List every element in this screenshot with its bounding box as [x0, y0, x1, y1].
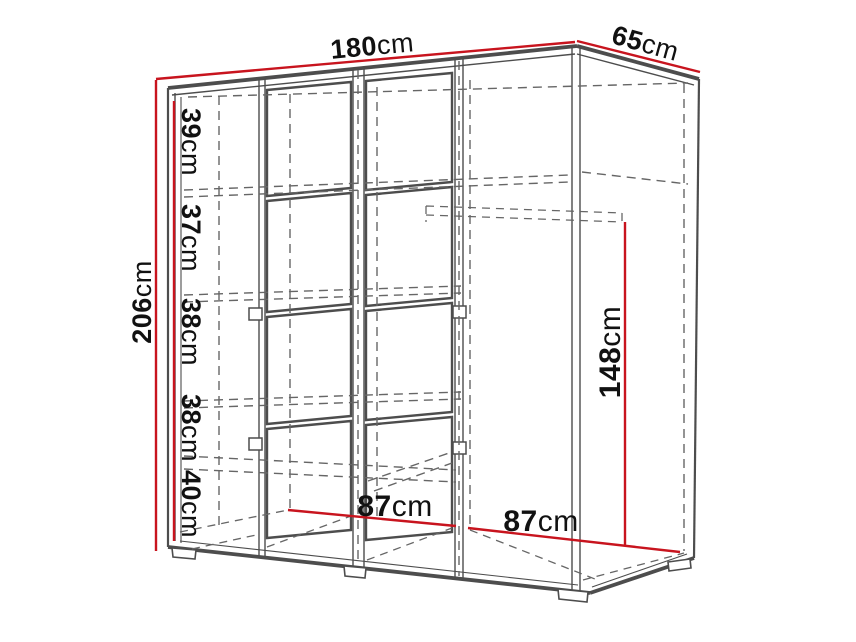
dim-compartment-4-value: 38 — [176, 394, 206, 425]
dim-height-value: 206 — [127, 297, 157, 344]
foot-right-front — [558, 589, 588, 602]
dim-compartment-2-unit: cm — [176, 235, 206, 272]
dim-compartment-2-label: 37cm — [176, 204, 206, 272]
dim-width-label: 180cm — [329, 27, 415, 65]
shelf-box-a1 — [267, 82, 351, 196]
shelf-support-tab-1 — [249, 308, 262, 320]
side-panel-shelf-hidden — [582, 172, 688, 184]
dim-hanging-value: 148 — [594, 347, 627, 399]
dim-height-label: 206cm — [127, 260, 157, 344]
front-bottom-edge-inner — [180, 541, 578, 585]
dim-bottom-left-value: 87 — [357, 490, 391, 523]
shelf-box-a2 — [267, 193, 351, 312]
dim-width-value: 180 — [329, 31, 378, 65]
dim-compartment-3-label: 38cm — [176, 298, 206, 366]
dim-width-unit: cm — [376, 27, 416, 60]
foot-center — [344, 566, 366, 578]
wardrobe-dimension-diagram: 180cm 65cm 206cm 39cm 37cm 38cm 38cm 40c… — [0, 0, 856, 642]
dim-bottom-left-label: 87cm — [357, 490, 432, 523]
dim-hanging-label: 148cm — [594, 306, 627, 399]
dim-hanging-unit: cm — [594, 306, 627, 347]
dim-compartment-5-value: 40 — [176, 470, 206, 501]
dim-bottom-right-label: 87cm — [503, 505, 578, 538]
dimension-labels: 180cm 65cm 206cm 39cm 37cm 38cm 38cm 40c… — [127, 20, 682, 538]
dim-compartment-1-value: 39 — [176, 108, 206, 139]
back-right-edge — [694, 79, 699, 558]
dim-bottom-left-unit: cm — [392, 490, 433, 523]
diagram-canvas: 180cm 65cm 206cm 39cm 37cm 38cm 38cm 40c… — [0, 0, 856, 642]
dim-compartment-3-value: 38 — [176, 298, 206, 329]
dim-bottom-right-unit: cm — [538, 505, 579, 538]
shelf-support-tab-2 — [249, 438, 262, 450]
shelf-box-b3 — [366, 303, 452, 420]
dim-compartment-5-unit: cm — [176, 501, 206, 538]
dimension-lines — [156, 41, 700, 552]
dim-depth-label: 65cm — [609, 20, 683, 67]
foot-right-back — [668, 559, 691, 571]
dim-compartment-1-label: 39cm — [176, 108, 206, 176]
dim-compartment-4-unit: cm — [176, 425, 206, 462]
dim-compartment-5-label: 40cm — [176, 470, 206, 538]
dim-compartment-3-unit: cm — [176, 329, 206, 366]
dim-compartment-2-value: 37 — [176, 204, 206, 235]
dim-compartment-1-unit: cm — [176, 139, 206, 176]
shelf-box-b1 — [366, 73, 452, 190]
dim-height-unit: cm — [127, 260, 157, 297]
dim-bottom-right-value: 87 — [503, 505, 537, 538]
dim-compartment-4-label: 38cm — [176, 394, 206, 462]
dim-depth-unit: cm — [639, 28, 683, 67]
shelf-box-a3 — [267, 309, 351, 424]
foot-left — [172, 548, 196, 559]
front-bottom-edge — [168, 547, 590, 593]
